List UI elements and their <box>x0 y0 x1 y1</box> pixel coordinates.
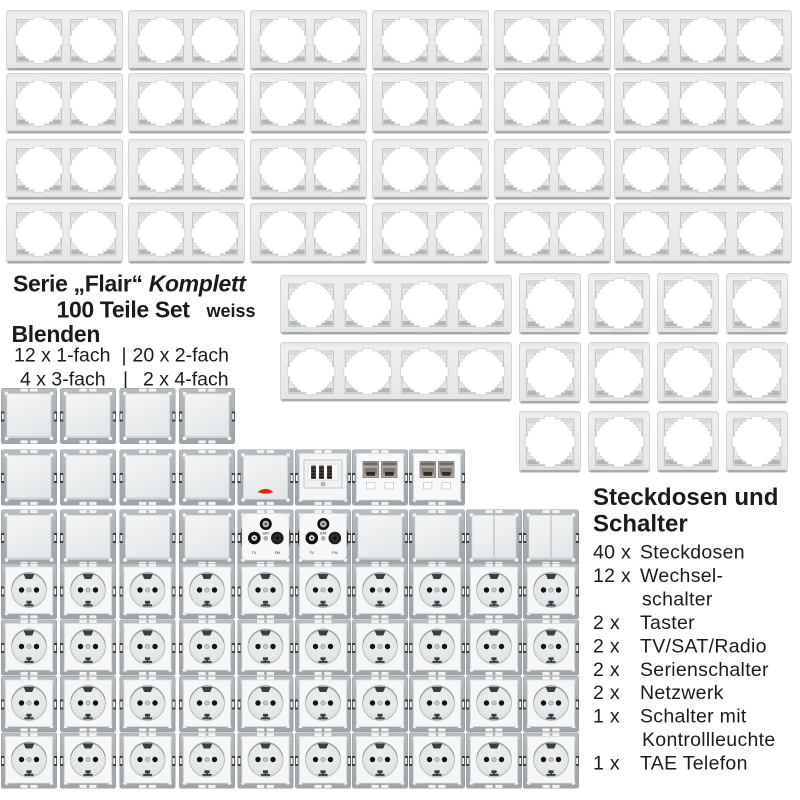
svg-text:100 Teile Set: 100 Teile Set <box>57 297 191 323</box>
svg-text:2 xTaster: 2 xTaster <box>593 612 695 634</box>
svg-text:weiss: weiss <box>206 301 256 321</box>
svg-text:12 x 1-fach|20 x 2-fach: 12 x 1-fach|20 x 2-fach <box>14 345 229 367</box>
svg-text:2 xTV/SAT/Radio: 2 xTV/SAT/Radio <box>593 635 767 657</box>
svg-text:Kontrollleuchte: Kontrollleuchte <box>642 729 776 751</box>
svg-text:1 xSchalter mit: 1 xSchalter mit <box>593 706 747 728</box>
svg-text:Serie „Flair“ Komplett: Serie „Flair“ Komplett <box>13 271 247 297</box>
svg-text:12 xWechsel-: 12 xWechsel- <box>593 565 723 587</box>
svg-text:Steckdosen und: Steckdosen und <box>593 484 778 511</box>
svg-text:2 xSerienschalter: 2 xSerienschalter <box>593 659 769 681</box>
svg-text:1 xTAE Telefon: 1 xTAE Telefon <box>593 753 748 775</box>
svg-text:4 x 3-fach|2 x 4-fach: 4 x 3-fach|2 x 4-fach <box>20 369 229 391</box>
svg-text:Blenden: Blenden <box>12 321 101 347</box>
svg-text:40 xSteckdosen: 40 xSteckdosen <box>593 542 745 564</box>
svg-text:2 xNetzwerk: 2 xNetzwerk <box>593 682 724 704</box>
svg-text:schalter: schalter <box>642 588 713 610</box>
svg-text:Schalter: Schalter <box>593 511 688 538</box>
